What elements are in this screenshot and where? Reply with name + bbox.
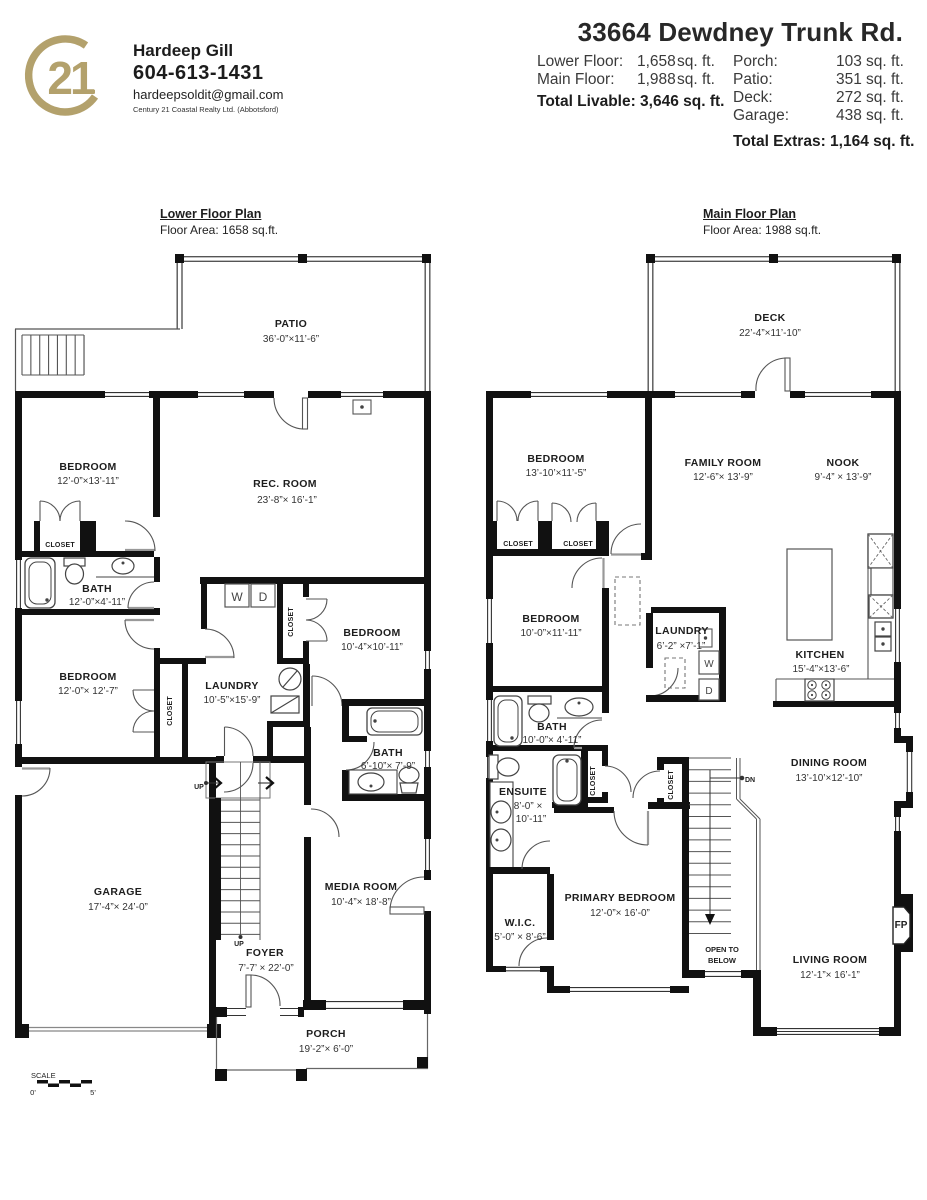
svg-text:FOYER: FOYER: [246, 947, 284, 959]
svg-text:DINING ROOM: DINING ROOM: [791, 757, 867, 769]
svg-text:6’-10”× 7’-9”: 6’-10”× 7’-9”: [361, 761, 415, 772]
svg-text:BEDROOM: BEDROOM: [527, 453, 584, 465]
svg-text:KITCHEN: KITCHEN: [795, 649, 844, 661]
svg-text:12’-0”× 12’-7”: 12’-0”× 12’-7”: [58, 686, 118, 697]
svg-text:LAUNDRY: LAUNDRY: [655, 625, 708, 637]
svg-text:BATH: BATH: [373, 747, 403, 759]
svg-text:REC. ROOM: REC. ROOM: [253, 478, 317, 490]
svg-text:UP: UP: [194, 784, 204, 791]
svg-text:10’-11”: 10’-11”: [516, 814, 546, 825]
svg-text:FAMILY ROOM: FAMILY ROOM: [685, 457, 762, 469]
svg-text:BATH: BATH: [537, 721, 567, 733]
svg-text:D: D: [705, 686, 712, 697]
svg-text:UP: UP: [234, 941, 244, 948]
svg-text:BEDROOM: BEDROOM: [59, 461, 116, 473]
svg-text:PATIO: PATIO: [275, 318, 307, 330]
svg-text:15’-4”×13’-6”: 15’-4”×13’-6”: [793, 664, 850, 675]
svg-text:10’-0”× 4’-11”: 10’-0”× 4’-11”: [522, 735, 581, 746]
svg-text:10’-4”×10’-11”: 10’-4”×10’-11”: [341, 642, 403, 653]
svg-text:W.I.C.: W.I.C.: [505, 917, 536, 929]
svg-text:5’-0” × 8’-6”: 5’-0” × 8’-6”: [494, 932, 545, 943]
svg-text:19’-2”× 6’-0”: 19’-2”× 6’-0”: [299, 1044, 353, 1055]
svg-text:36’-0”×11’-6”: 36’-0”×11’-6”: [263, 334, 319, 345]
svg-text:DECK: DECK: [754, 312, 785, 324]
svg-text:12’-0”×4’-11”: 12’-0”×4’-11”: [69, 597, 125, 608]
svg-text:OPEN TO: OPEN TO: [705, 945, 739, 954]
svg-text:CLOSET: CLOSET: [167, 696, 174, 726]
svg-text:PRIMARY BEDROOM: PRIMARY BEDROOM: [565, 892, 676, 904]
svg-text:FP: FP: [895, 920, 908, 931]
svg-text:13’-10’×11’-5”: 13’-10’×11’-5”: [526, 468, 587, 479]
svg-text:12’-0”×13’-11”: 12’-0”×13’-11”: [57, 476, 119, 487]
svg-text:5’: 5’: [90, 1088, 96, 1097]
svg-text:W: W: [704, 659, 714, 670]
svg-text:22’-4”×11’-10”: 22’-4”×11’-10”: [739, 328, 801, 339]
svg-text:13’-10’×12’-10”: 13’-10’×12’-10”: [796, 773, 863, 784]
svg-text:0’: 0’: [30, 1088, 36, 1097]
svg-text:10’-5”×15’-9”: 10’-5”×15’-9”: [204, 695, 261, 706]
svg-text:10’-4”× 18’-8”: 10’-4”× 18’-8”: [331, 897, 391, 908]
svg-text:D: D: [259, 590, 268, 604]
svg-text:12’-1”× 16’-1”: 12’-1”× 16’-1”: [800, 970, 860, 981]
svg-text:MEDIA ROOM: MEDIA ROOM: [325, 881, 398, 893]
svg-text:17’-4”× 24’-0”: 17’-4”× 24’-0”: [88, 902, 148, 913]
svg-text:CLOSET: CLOSET: [45, 542, 75, 549]
svg-text:SCALE: SCALE: [31, 1071, 56, 1080]
svg-text:CLOSET: CLOSET: [288, 607, 295, 637]
svg-text:LAUNDRY: LAUNDRY: [205, 680, 258, 692]
svg-text:CLOSET: CLOSET: [503, 541, 533, 548]
svg-text:BELOW: BELOW: [708, 956, 737, 965]
svg-text:6’-2” ×7’-1”: 6’-2” ×7’-1”: [657, 641, 706, 652]
svg-text:7’-7’ × 22’-0”: 7’-7’ × 22’-0”: [238, 963, 294, 974]
svg-text:CLOSET: CLOSET: [668, 770, 675, 800]
svg-text:DN: DN: [745, 777, 755, 784]
svg-text:8’-0” ×: 8’-0” ×: [514, 801, 543, 812]
svg-text:23’-8”× 16’-1”: 23’-8”× 16’-1”: [257, 495, 317, 506]
svg-text:BATH: BATH: [82, 583, 112, 595]
svg-text:CLOSET: CLOSET: [590, 766, 597, 796]
svg-text:ENSUITE: ENSUITE: [499, 786, 547, 798]
svg-text:PORCH: PORCH: [306, 1028, 346, 1040]
svg-text:GARAGE: GARAGE: [94, 886, 142, 898]
svg-text:12’-6”× 13’-9”: 12’-6”× 13’-9”: [693, 472, 753, 483]
svg-text:12’-0”× 16’-0”: 12’-0”× 16’-0”: [590, 908, 650, 919]
svg-text:BEDROOM: BEDROOM: [59, 671, 116, 683]
svg-text:BEDROOM: BEDROOM: [343, 627, 400, 639]
svg-text:9’-4” × 13’-9”: 9’-4” × 13’-9”: [815, 472, 872, 483]
svg-text:W: W: [231, 590, 243, 604]
svg-text:10’-0”×11’-11”: 10’-0”×11’-11”: [520, 628, 581, 639]
svg-text:CLOSET: CLOSET: [563, 541, 593, 548]
svg-text:NOOK: NOOK: [827, 457, 860, 469]
svg-text:BEDROOM: BEDROOM: [522, 613, 579, 625]
svg-text:LIVING ROOM: LIVING ROOM: [793, 954, 867, 966]
